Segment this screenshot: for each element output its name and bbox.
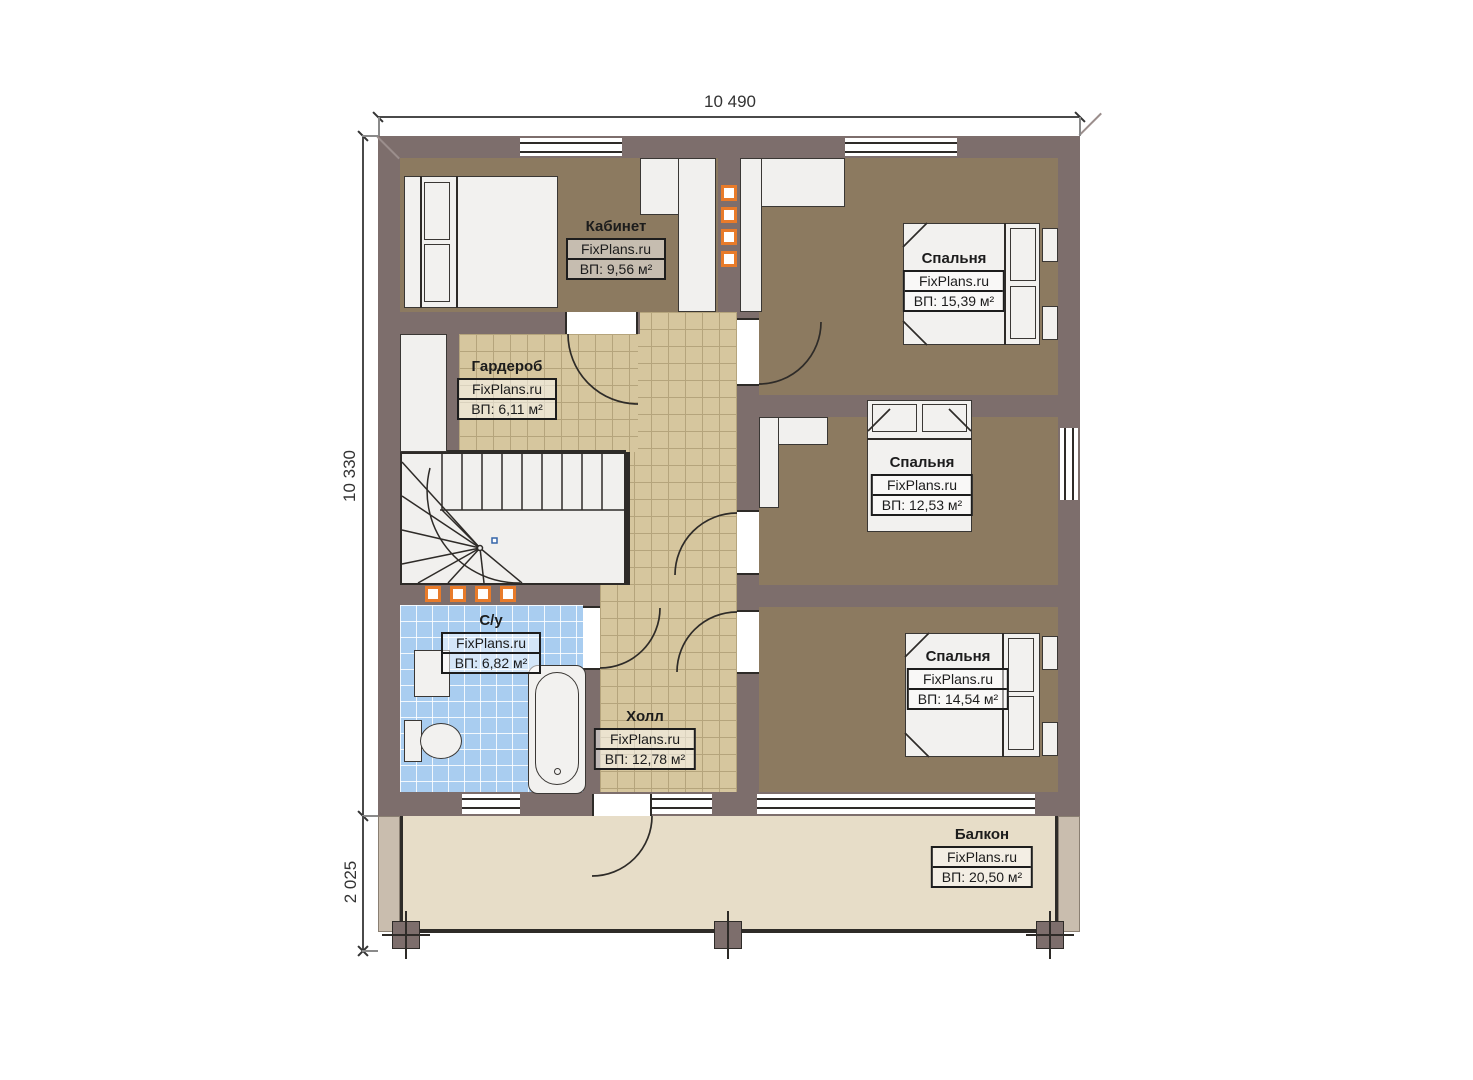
room-label-bedroom3: Спальня FixPlans.ru ВП: 14,54 м² bbox=[907, 648, 1009, 710]
room-area: ВП: 12,53 м² bbox=[873, 496, 971, 514]
watermark: FixPlans.ru bbox=[596, 730, 694, 750]
bedroom1-nightstand bbox=[1042, 306, 1058, 340]
room-info-box: FixPlans.ru ВП: 6,11 м² bbox=[457, 378, 557, 420]
door-opening-bedroom2 bbox=[737, 510, 759, 575]
watermark: FixPlans.ru bbox=[909, 670, 1007, 690]
room-label-wardrobe: Гардероб FixPlans.ru ВП: 6,11 м² bbox=[457, 358, 557, 420]
office-bed-pillow bbox=[424, 182, 450, 240]
room-name: Холл bbox=[626, 708, 664, 725]
window-bathroom bbox=[462, 794, 520, 814]
room-name: Спальня bbox=[926, 648, 991, 665]
vent-square-icon bbox=[721, 207, 737, 223]
extension-line bbox=[362, 135, 378, 137]
room-info-box: FixPlans.ru ВП: 12,78 м² bbox=[594, 728, 696, 770]
wall-top bbox=[378, 136, 1080, 158]
vent-square-icon bbox=[500, 586, 516, 602]
window-bedroom3-glazing bbox=[757, 794, 1035, 814]
extension-line bbox=[1079, 117, 1081, 136]
room-area: ВП: 9,56 м² bbox=[568, 260, 664, 278]
room-name: Спальня bbox=[922, 250, 987, 267]
room-info-box: FixPlans.ru ВП: 15,39 м² bbox=[903, 270, 1005, 312]
column-centerline bbox=[727, 911, 729, 959]
column-centerline bbox=[382, 934, 430, 936]
balcony-wall-right bbox=[1058, 816, 1080, 932]
floor-plan: Кабинет FixPlans.ru ВП: 9,56 м² Гардероб… bbox=[0, 0, 1473, 1080]
room-label-office: Кабинет FixPlans.ru ВП: 9,56 м² bbox=[566, 218, 666, 280]
stairs bbox=[400, 452, 626, 585]
dimension-line-left bbox=[362, 136, 364, 816]
corner-diagonal bbox=[1079, 113, 1102, 136]
dimension-line-top bbox=[378, 116, 1080, 118]
vent-square-icon bbox=[475, 586, 491, 602]
bedroom3-pillow bbox=[1008, 696, 1034, 750]
bedroom1-pillow bbox=[1010, 286, 1036, 339]
office-bed-headboard bbox=[420, 176, 422, 308]
watermark: FixPlans.ru bbox=[443, 634, 539, 654]
room-area: ВП: 6,11 м² bbox=[459, 400, 555, 418]
room-label-hall: Холл FixPlans.ru ВП: 12,78 м² bbox=[594, 708, 696, 770]
extension-line bbox=[378, 117, 380, 136]
room-info-box: FixPlans.ru ВП: 20,50 м² bbox=[931, 846, 1033, 888]
door-opening-bedroom1 bbox=[737, 318, 759, 386]
room-label-bedroom1: Спальня FixPlans.ru ВП: 15,39 м² bbox=[903, 250, 1005, 312]
window-office bbox=[520, 138, 622, 156]
column-centerline bbox=[1026, 934, 1074, 936]
bedroom3-nightstand bbox=[1042, 722, 1058, 756]
door-opening-balcony bbox=[592, 794, 652, 816]
watermark: FixPlans.ru bbox=[568, 240, 664, 260]
bedroom3-pillow bbox=[1008, 638, 1034, 692]
bedroom1-nightstand bbox=[1042, 228, 1058, 262]
dimension-bottom-left: 2 025 bbox=[341, 847, 361, 917]
balcony-wall-left bbox=[378, 816, 400, 932]
bedroom2-blanket-edge bbox=[867, 438, 972, 440]
room-name: Балкон bbox=[955, 826, 1009, 843]
door-opening-bathroom bbox=[583, 606, 600, 670]
vent-square-icon bbox=[721, 251, 737, 267]
room-name: С/у bbox=[479, 612, 502, 629]
room-name: Гардероб bbox=[472, 358, 543, 375]
vent-square-icon bbox=[721, 185, 737, 201]
bedroom2-pillow bbox=[922, 404, 967, 432]
extension-line bbox=[362, 815, 378, 817]
room-info-box: FixPlans.ru ВП: 6,82 м² bbox=[441, 632, 541, 674]
window-hall-bottom bbox=[652, 794, 712, 814]
extension-line bbox=[362, 950, 378, 952]
room-area: ВП: 20,50 м² bbox=[933, 868, 1031, 886]
watermark: FixPlans.ru bbox=[459, 380, 555, 400]
dimension-top: 10 490 bbox=[630, 92, 830, 112]
room-area: ВП: 15,39 м² bbox=[905, 292, 1003, 310]
bathtub-drain bbox=[554, 768, 561, 775]
watermark: FixPlans.ru bbox=[873, 476, 971, 496]
window-bedroom1 bbox=[845, 138, 957, 156]
room-area: ВП: 14,54 м² bbox=[909, 690, 1007, 708]
room-info-box: FixPlans.ru ВП: 9,56 м² bbox=[566, 238, 666, 280]
bedroom1-pillow bbox=[1010, 228, 1036, 281]
room-area: ВП: 12,78 м² bbox=[596, 750, 694, 768]
vent-square-icon bbox=[721, 229, 737, 245]
wall-bedroom-divider2 bbox=[759, 585, 1058, 607]
watermark: FixPlans.ru bbox=[933, 848, 1031, 868]
office-closet-b bbox=[678, 158, 716, 312]
toilet-bowl bbox=[420, 723, 462, 759]
room-name: Кабинет bbox=[586, 218, 647, 235]
window-bedroom2 bbox=[1060, 428, 1078, 500]
room-label-bathroom: С/у FixPlans.ru ВП: 6,82 м² bbox=[441, 612, 541, 674]
vent-square-icon bbox=[425, 586, 441, 602]
room-label-balcony: Балкон FixPlans.ru ВП: 20,50 м² bbox=[931, 826, 1033, 888]
bedroom2-closet-b bbox=[759, 417, 779, 508]
wardrobe-niche bbox=[400, 334, 447, 452]
dimension-line-bottom-left bbox=[362, 816, 364, 952]
watermark: FixPlans.ru bbox=[905, 272, 1003, 292]
door-opening-bedroom3 bbox=[737, 610, 759, 674]
bedroom2-pillow bbox=[872, 404, 917, 432]
bedroom3-nightstand bbox=[1042, 636, 1058, 670]
room-info-box: FixPlans.ru ВП: 12,53 м² bbox=[871, 474, 973, 516]
room-name: Спальня bbox=[890, 454, 955, 471]
door-opening-office bbox=[565, 312, 638, 334]
dimension-left: 10 330 bbox=[340, 436, 360, 516]
wall-left bbox=[378, 136, 400, 816]
office-bed-pillow bbox=[424, 244, 450, 302]
room-area: ВП: 6,82 м² bbox=[443, 654, 539, 672]
room-label-bedroom2: Спальня FixPlans.ru ВП: 12,53 м² bbox=[871, 454, 973, 516]
bedroom1-closet-b bbox=[740, 158, 762, 312]
office-bed-blanket-edge bbox=[456, 176, 458, 308]
room-info-box: FixPlans.ru ВП: 14,54 м² bbox=[907, 668, 1009, 710]
vent-square-icon bbox=[450, 586, 466, 602]
